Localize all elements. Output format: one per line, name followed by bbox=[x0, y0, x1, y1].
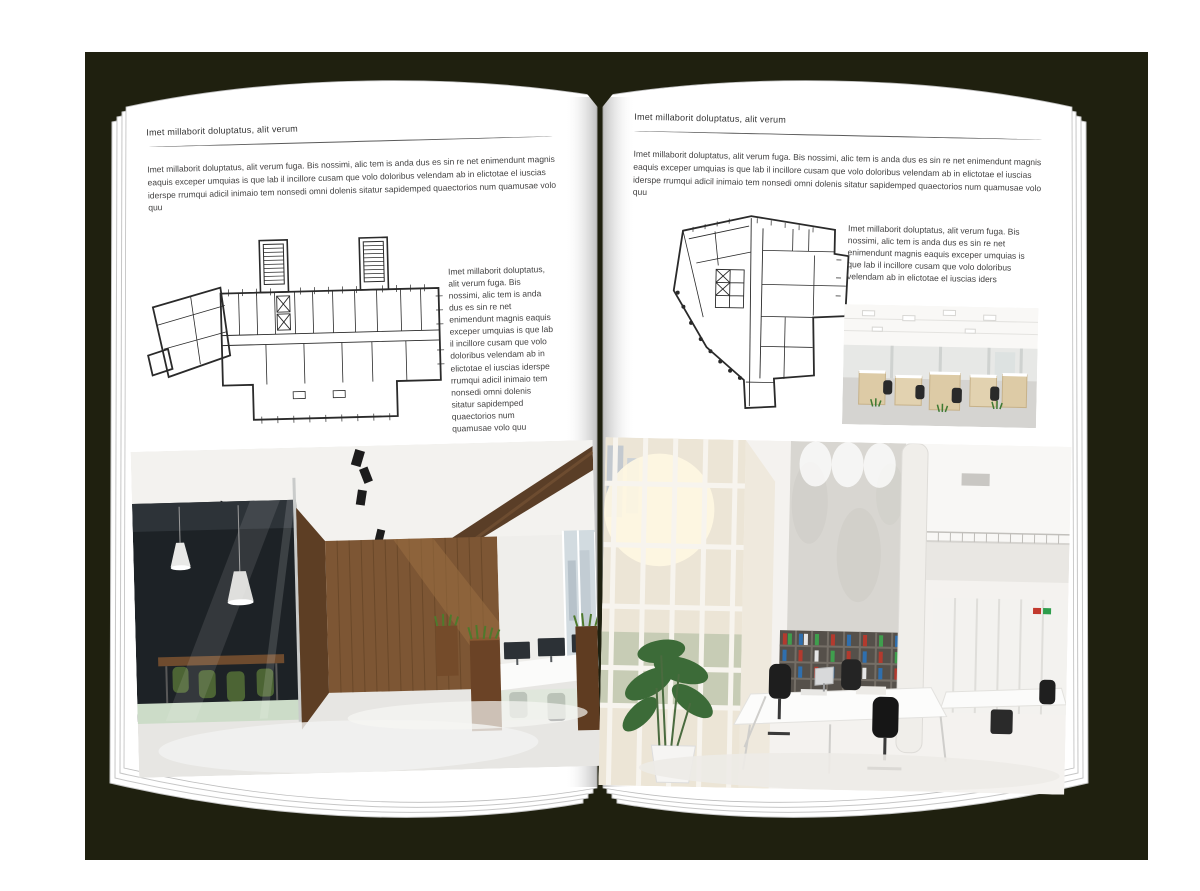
right-page-header: Imet millaborit doluptatus, alit verum bbox=[634, 112, 786, 125]
plan-elevator-core bbox=[277, 296, 291, 330]
plan-outline bbox=[221, 288, 442, 421]
plan-columns bbox=[674, 291, 744, 380]
office-photo-right-small bbox=[842, 304, 1038, 428]
left-intro-paragraph: Imet millaborit doluptatus, alit verum f… bbox=[147, 153, 560, 215]
brochure-spread: Imet millaborit doluptatus, alit verum I… bbox=[0, 0, 1200, 891]
glass-meeting-room bbox=[131, 478, 301, 726]
plan-outline bbox=[671, 215, 849, 411]
right-side-text: Imet millaborit doluptatus, alit verum f… bbox=[847, 222, 1034, 286]
left-page: Imet millaborit doluptatus, alit verum I… bbox=[121, 60, 602, 788]
office-photo-right-large bbox=[598, 437, 1071, 795]
floor-plan-right-image bbox=[646, 204, 856, 420]
left-header-rule bbox=[147, 136, 553, 148]
office-photo-left-large bbox=[131, 440, 601, 778]
right-page: Imet millaborit doluptatus, alit verum I… bbox=[598, 57, 1079, 789]
right-intro-paragraph: Imet millaborit doluptatus, alit verum f… bbox=[633, 148, 1048, 208]
plan-left-wing bbox=[146, 287, 230, 377]
mezzanine-balcony bbox=[903, 443, 1071, 583]
plan-core bbox=[715, 269, 744, 308]
floor-plan-left-image bbox=[141, 230, 448, 428]
left-page-header: Imet millaborit doluptatus, alit verum bbox=[146, 124, 298, 138]
left-side-text: Imet millaborit doluptatus, alit verum f… bbox=[448, 263, 556, 435]
stair-towers bbox=[259, 237, 388, 292]
right-header-rule bbox=[634, 131, 1042, 141]
concrete-wall bbox=[787, 441, 906, 633]
